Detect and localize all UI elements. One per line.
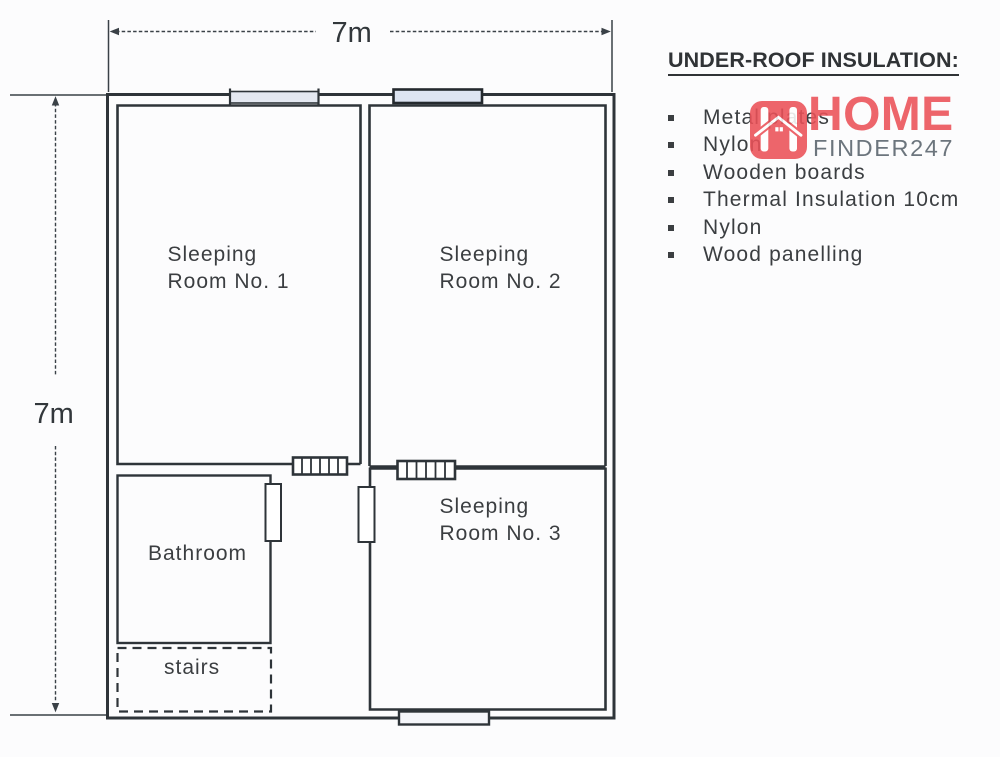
svg-text:7m: 7m [34, 398, 74, 430]
svg-text:7m: 7m [332, 17, 372, 49]
